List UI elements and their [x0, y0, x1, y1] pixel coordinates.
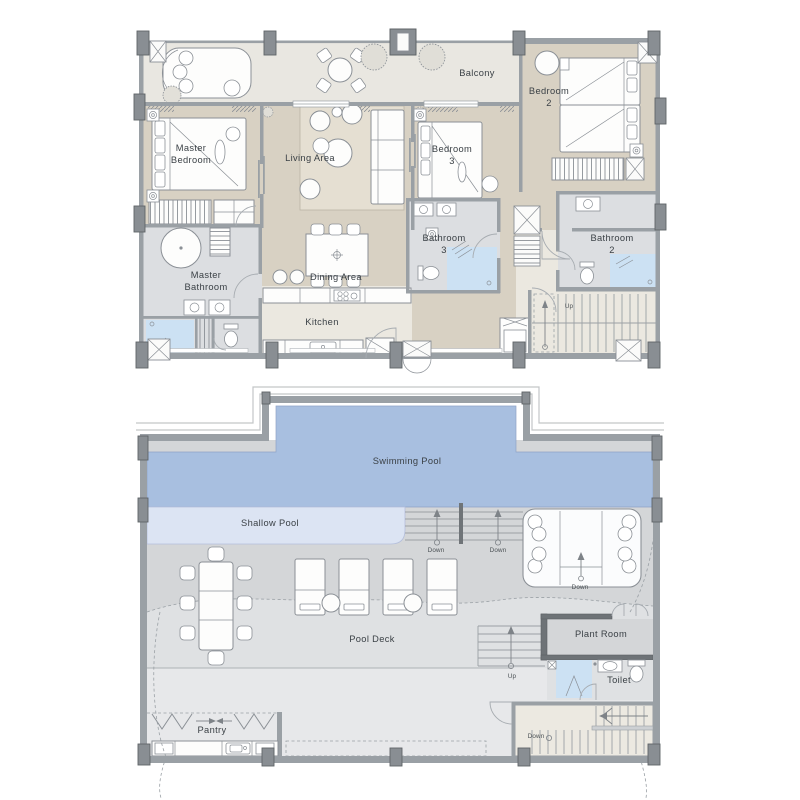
room-label-toilet: Toilet	[607, 674, 631, 686]
toilet-icon	[224, 324, 238, 347]
stair-direction-label-down: Down	[428, 547, 445, 555]
room-label-shallow-pool: Shallow Pool	[241, 517, 299, 529]
stair-direction-label-up: Up	[508, 673, 516, 681]
room-label-pantry: Pantry	[198, 724, 227, 736]
room-label-master-bathroom: Master Bathroom	[184, 269, 227, 293]
room-label-swimming-pool: Swimming Pool	[373, 455, 442, 467]
level-1-plan	[134, 29, 666, 373]
stair-direction-label-down: Down	[528, 733, 545, 741]
room-label-bathroom-2: Bathroom 2	[590, 232, 633, 256]
wardrobe-icon	[149, 200, 254, 224]
room-label-dining-area: Dining Area	[310, 271, 362, 283]
sunken-lounge-icon	[523, 509, 641, 587]
stair-direction-label-down: Down	[572, 584, 589, 592]
room-label-living-area: Living Area	[285, 152, 335, 164]
stair-direction-label-down: Down	[490, 547, 507, 555]
room-label-bedroom-3: Bedroom 3	[432, 143, 472, 167]
room-label-bathroom-3: Bathroom 3	[422, 232, 465, 256]
room-label-kitchen: Kitchen	[305, 316, 338, 328]
floor-plan-drawing	[0, 0, 800, 800]
room-label-pool-deck: Pool Deck	[349, 633, 395, 645]
chaise-lounge-icon	[162, 48, 251, 104]
room-label-master-bedroom: Master Bedroom	[171, 142, 211, 166]
toilet-room	[547, 660, 653, 700]
stairs-icon	[490, 702, 653, 756]
room-label-plant-room: Plant Room	[575, 628, 627, 640]
stair-direction-label-up: Up	[565, 303, 573, 311]
room-label-balcony: Balcony	[459, 67, 495, 79]
shower-area	[556, 660, 592, 698]
room-label-bedroom-2: Bedroom 2	[529, 85, 569, 109]
level-2-plan	[136, 387, 664, 798]
